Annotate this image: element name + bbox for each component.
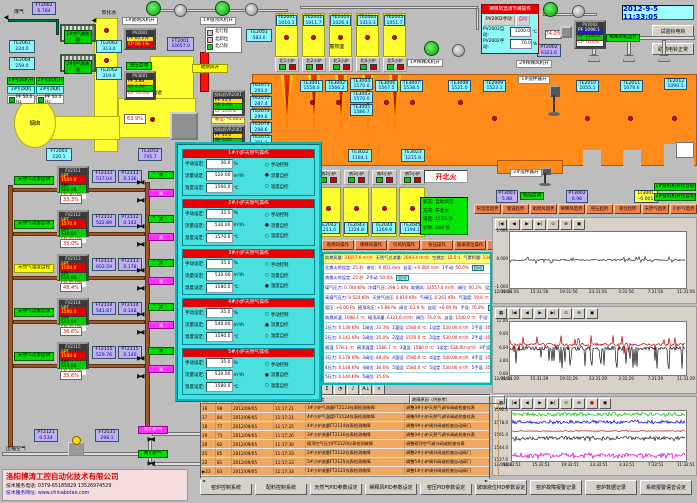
- vfun-shape: [658, 55, 670, 62]
- fan-icon: [174, 4, 187, 17]
- radio-流量自控[interactable]: ●流量自控: [265, 372, 314, 378]
- tag-PT3002: PT30026.96: [566, 190, 588, 203]
- tag-TE3005: TE30051586.7: [350, 104, 373, 116]
- red-dot: [458, 100, 463, 105]
- id-fan2: 2#引风机: [36, 86, 64, 94]
- chart-toolbar-icon[interactable]: ▶|: [547, 398, 559, 409]
- trend-chart-1: |◀◀▶▶|⊙⊕▣1.0000.000-1.00012/09/0411:31:5…: [492, 217, 697, 304]
- controller-FV2111: FV2111SPT 1560.0SPF 520.00CP 30.0%: [57, 166, 89, 193]
- valve[interactable]: ▶◀: [137, 284, 149, 292]
- panel-title: 5#小炉天然气操作: [183, 349, 314, 357]
- radio-温度自控[interactable]: ○温度自控: [265, 184, 314, 190]
- valve[interactable]: ▶◀: [137, 196, 149, 204]
- chart-plot: [509, 231, 687, 289]
- dilution-panel-title: 稀释风温调节阀操作: [482, 5, 538, 14]
- radio-温度自控[interactable]: ○温度自控: [265, 233, 314, 239]
- comb-fan1-on: 1#助燃风机开: [122, 17, 158, 25]
- tag-FT2002: FT20020.784: [32, 2, 56, 15]
- ops-button-4[interactable]: 窑压操作: [421, 240, 453, 250]
- valve[interactable]: ▶◀: [144, 459, 156, 467]
- alarm-row[interactable]: 17842012/09/0511:17:214#小炉气温度FT2124仪表检测故…: [201, 413, 489, 422]
- tag-FT2111: FT2111517.04: [92, 170, 116, 183]
- fan-frequency: PF 50.0 Hz: [7, 95, 35, 104]
- chart-toolbar-icon[interactable]: |◀: [508, 398, 520, 409]
- tag-TE2071: TE2071293.0: [250, 83, 272, 94]
- dilution-valve-panel: 稀释风温调节阀操作 PV2002手动 自动 PV2002自动: 1100.0 ℃…: [481, 4, 539, 54]
- tag-TE3007: TE30071538.5: [400, 80, 423, 92]
- valve-pos-FV2113: 48.4%: [60, 283, 82, 292]
- alarm-row[interactable]: 20822012/09/0511:17:30碹顶空气压力PT2120仪表检测故障…: [201, 440, 489, 449]
- comb-bell-button[interactable]: 助燃电铃正常: [652, 43, 694, 55]
- controller-投料机VR2001: 投料机VR2001PF 33.0SP 0.00CP 10.0%: [211, 90, 245, 116]
- burner-north-1[interactable]: 北1小炉: [275, 57, 299, 72]
- stirrer-1: [546, 86, 562, 126]
- controller-FV2112: FV2112SPT 1570.0SPF 530.00CP 35.0%: [57, 210, 89, 237]
- tag-TE2010: TE20101055.1: [576, 80, 599, 92]
- fan-icon: [245, 3, 258, 16]
- train-mode-5: 天然气流量自动: [14, 352, 54, 361]
- alarm-row[interactable]: 18772012/09/0511:17:254#小炉流量FT2114仪表检测故障…: [201, 422, 489, 431]
- radio-手动控制[interactable]: ○手动控制: [265, 162, 314, 168]
- valve-pos-FV2115: 35.6%: [60, 371, 82, 380]
- alarm-row[interactable]: 22812012/09/0511:17:335#小炉流量FT2125仪表检测故障…: [201, 458, 489, 467]
- tag-TE2063: TE2063313.0: [96, 40, 122, 53]
- flow-setpoint[interactable]: 530.00: [206, 370, 233, 380]
- comb-air-open: 助燃风开: [192, 64, 228, 73]
- red-dot: [150, 117, 155, 122]
- vfun-shape: [623, 55, 635, 62]
- red-dot: [338, 35, 343, 40]
- burner-south-3[interactable]: 南3小炉: [344, 170, 369, 185]
- burner-north-4[interactable]: 北4小炉: [356, 57, 380, 72]
- red-dot: [354, 206, 359, 211]
- red-dot: [628, 116, 633, 121]
- chart-toolbar-icon[interactable]: ◀: [521, 308, 533, 319]
- red-dot: [382, 206, 387, 211]
- chart-toolbar-icon[interactable]: ●: [586, 398, 598, 409]
- tag-TE2011: TE20111079.6: [620, 80, 643, 92]
- alarm-row[interactable]: 21852012/09/0511:17:332#小炉流量FT2122仪表检测故障…: [201, 449, 489, 458]
- burner-gas-panel-3: 3#小炉天然气操作手动设定:35.0%流量设定:530.00m³/h温度设定:1…: [182, 249, 315, 296]
- red-dot: [326, 206, 331, 211]
- chart-toolbar-icon[interactable]: ▶: [521, 219, 533, 230]
- tag-FT2114: FT2114541.87: [92, 302, 116, 315]
- process-summary-table: 助燃风量:33557.6 m³/h天然气总流量:2693.4 m³/h空燃比:1…: [322, 252, 492, 385]
- reversal-status: 状态: 自动状态方向: 开北火设定: 1175 秒计时: 269 秒: [420, 197, 468, 235]
- alarm-table: 故障点故障原因（供参考）16982012/09/0511:17:213#小炉气流…: [200, 394, 490, 478]
- pv2002-manual-button[interactable]: PV2002手动: [483, 15, 515, 26]
- gas-close-south-2: 南2天然气关: [148, 233, 174, 241]
- nav-button-8[interactable]: 窑炉数据记录: [585, 480, 637, 495]
- fan-icon: [215, 1, 230, 16]
- pipeB-shape: [8, 185, 13, 447]
- red-dot: [365, 35, 370, 40]
- ops-button-1[interactable]: 助燃风操作: [322, 240, 354, 250]
- radio-温度自控[interactable]: ●温度自控: [265, 283, 314, 289]
- gas-close-south-5: 南5天然气关: [148, 365, 174, 373]
- gas-close-south-4: 南4天然气关: [148, 321, 174, 329]
- tag-TE3023: TE30231215.8: [401, 149, 425, 162]
- mode-chip[interactable]: 自动: [396, 275, 408, 281]
- chart-toolbar-icon[interactable]: ⊙: [560, 398, 572, 409]
- burner-gas-panel-4: 4#小炉天然气操作手动设定:35.0%流量设定:540.00m³/h温度设定:1…: [182, 298, 315, 345]
- valve[interactable]: ▶◀: [144, 435, 156, 443]
- alarm-scrollbar[interactable]: ◄►: [201, 476, 489, 484]
- trend-button-4[interactable]: 稀释风趋势: [558, 204, 585, 214]
- scada-screen: 2012-9-5 11:33:05 稀释风温调节阀操作 PV2002手动 自动 …: [0, 0, 697, 503]
- tag-TE2009: TE20091523.1: [483, 80, 506, 92]
- chart-toolbar-icon[interactable]: ⊙: [547, 219, 559, 230]
- controller-PV3001: PV3001PF 5.88SP 6.00CP 70.0%: [124, 71, 156, 100]
- manual-setpoint[interactable]: 35.0: [206, 358, 233, 368]
- tag-TE2052: TE2052745.7: [138, 148, 162, 161]
- pv2002-auto-button[interactable]: 自动: [516, 15, 531, 26]
- radio-流量自控[interactable]: ●流量自控: [265, 173, 314, 179]
- pv2002-auto-input[interactable]: 1100.0: [510, 27, 531, 37]
- chart-toolbar-icon[interactable]: ▶|: [534, 219, 546, 230]
- id-fan2-on: 2#引风机开: [36, 77, 64, 85]
- radio-手动控制[interactable]: ○手动控制: [265, 362, 314, 368]
- manual-setpoint[interactable]: 35.0: [206, 259, 233, 269]
- valve[interactable]: ▶◀: [137, 240, 149, 248]
- mode-chip[interactable]: 自动: [488, 305, 490, 311]
- tag-TE2004: TE20041013.3: [357, 15, 378, 26]
- gas-open-north-1: 北1天然气开: [148, 171, 174, 179]
- label-soft-water: 软化水: [98, 10, 120, 17]
- id-fan1: 1#引风机: [7, 86, 35, 94]
- flow-arrow-left: ◀: [2, 14, 10, 22]
- panel-title: 1#小炉天然气操作: [183, 150, 314, 158]
- controller-FV2114: FV2114SPT 1590.0SPF 540.00CP 35.0%: [57, 298, 89, 325]
- train-mode-2: 天然气流量自动: [14, 220, 54, 229]
- flow-setpoint[interactable]: 530.00: [206, 271, 233, 281]
- trend-button-2[interactable]: 烟道趋势: [502, 204, 529, 214]
- stirrer1-on: 1#搅拌器开: [518, 76, 550, 84]
- label-regenerator-north: 蓄热室: [327, 44, 347, 50]
- red-dot: [492, 116, 497, 121]
- tag-FT2001: FT200133657.0: [167, 37, 194, 51]
- flow-setpoint[interactable]: 530.00: [206, 221, 233, 231]
- valve-pos-FV2114: 36.6%: [60, 327, 82, 336]
- valve[interactable]: ▶◀: [137, 354, 149, 362]
- feeder2-level-auto: 2#投料机液位自动: [654, 193, 696, 201]
- burner-north-3[interactable]: 北3小炉: [329, 57, 353, 72]
- gas-open-north-5: 北5天然气开: [148, 347, 174, 355]
- gas-open-north-3: 北3天然气开: [148, 259, 174, 267]
- pipeT-shape: [56, 19, 59, 35]
- tag-FT2112: FT2112522.89: [92, 214, 116, 227]
- label-compressed-air: 压缩空气: [3, 446, 29, 453]
- tag-TE3022: TE30221194.1: [348, 149, 372, 162]
- red-dot: [336, 100, 341, 105]
- tag-PT3001: PT30015.88: [496, 190, 518, 203]
- pipe-shape: [627, 40, 631, 55]
- burner-south-4[interactable]: 南4小炉: [372, 170, 397, 185]
- pipe-shape: [662, 40, 666, 55]
- controller-FV2115: FV2115SPT 1580.0SPF 530.00CP 35.0%: [57, 342, 89, 369]
- radio-流量自控[interactable]: ○流量自控: [265, 273, 314, 279]
- tag-FT2113: FT2113603.59: [92, 258, 116, 271]
- temp-setpoint[interactable]: 1560.0: [206, 183, 233, 193]
- ops-button-5[interactable]: 玻璃液位操作: [454, 240, 486, 250]
- dilution-fan-running: 稀释风机运行: [606, 34, 640, 42]
- heat-exchanger: 1#空气换热器: [60, 24, 96, 42]
- flue-fan-machine: [170, 112, 198, 140]
- fan-frequency: PF 50.0 Hz: [36, 95, 64, 104]
- valve[interactable]: ▶◀: [137, 266, 149, 274]
- flow-setpoint[interactable]: 520.00: [206, 171, 233, 181]
- panel-title: 3#小炉天然气操作: [183, 250, 314, 258]
- chart-toolbar-icon[interactable]: ⊕: [560, 219, 572, 230]
- burner-north-5[interactable]: 北5小炉: [383, 57, 407, 72]
- kiln-pressure-auto: 窑压自动: [520, 192, 544, 200]
- tag-TE2043: TE20431224.8: [344, 222, 368, 234]
- temp-setpoint[interactable]: 1570.0: [206, 233, 233, 243]
- tag-TE2044: TE20441269.8: [372, 222, 396, 234]
- chart-toolbar-icon[interactable]: ⊕: [573, 398, 585, 409]
- bg-shape: [623, 150, 641, 166]
- red-dot: [310, 100, 315, 105]
- crown-fan1-on: 1#碹顶风机开: [200, 17, 236, 25]
- tag-TE2073: TE2073299.6: [250, 109, 272, 120]
- air-mixer: [560, 26, 572, 38]
- tag-TE3002: TE30021566.2: [325, 80, 348, 92]
- manual-setpoint[interactable]: 30.0: [206, 159, 233, 169]
- controller-FV2113: FV2113SPT 1580.0SPF 530.00CP 35.0%: [57, 254, 89, 281]
- radio-手动控制[interactable]: ○手动控制: [265, 312, 314, 318]
- alarm-row[interactable]: 16982012/09/0511:17:213#小炉气流量FT2123仪表检测故…: [201, 404, 489, 413]
- vfun-shape: [588, 55, 600, 62]
- panel-title: 4#小炉天然气操作: [183, 299, 314, 307]
- red-dot: [384, 100, 389, 105]
- valve-pos-FV2111: 33.3%: [60, 195, 82, 204]
- trend-button-5[interactable]: 窑压趋势: [586, 204, 613, 214]
- gas-open-north-2: 北2天然气开: [148, 215, 174, 223]
- radio-流量自控[interactable]: ●流量自控: [265, 322, 314, 328]
- tag-TE2003: TE20031026.4: [330, 15, 351, 26]
- tag-TE2005: TE20051051.7: [384, 15, 405, 26]
- red-dot: [104, 28, 109, 33]
- burner-gas-panel-2: 2#小炉天然气操作手动设定:35.0%流量设定:530.00m³/h温度设定:1…: [182, 199, 315, 246]
- mode-chip[interactable]: 自动: [472, 265, 484, 271]
- temp-setpoint[interactable]: 1590.0: [206, 332, 233, 342]
- radio-流量自控[interactable]: ●流量自控: [265, 223, 314, 229]
- trend-button-8[interactable]: 小炉气趋势: [670, 204, 697, 214]
- radio-手动控制[interactable]: ○手动控制: [265, 212, 314, 218]
- tag-TE2064: TE2064259.0: [9, 57, 35, 70]
- chart-toolbar-icon[interactable]: ▣: [573, 219, 585, 230]
- feeder1-level-auto: 1#投料机液位自动: [654, 183, 696, 191]
- valve[interactable]: ▶◀: [137, 372, 149, 380]
- bg-shape: [583, 150, 601, 166]
- trend-chart-2: ▦|◀◀▶▶|⊙⊕▣12.009.006.003.000.0012/09/041…: [492, 306, 697, 394]
- label-coal-gas: 煤气: [10, 9, 28, 16]
- trend-chart-3: ▦|◀◀▶▶|⊙⊕●▣1592.01578.01561.01544.01527.…: [492, 396, 697, 476]
- chart-toolbar-icon[interactable]: ▶|: [547, 308, 559, 319]
- south-port-gas: 南小炉气: [138, 450, 168, 458]
- chart-toolbar-icon[interactable]: ◀: [521, 398, 533, 409]
- tag-TE3008: TE30081521.0: [448, 80, 471, 92]
- tag-TE2074: TE2074298.6: [250, 122, 272, 133]
- flow-setpoint[interactable]: 540.00: [206, 320, 233, 330]
- red-dot: [392, 35, 397, 40]
- reversal-legend: 北行程北卸位北凸轮: [205, 27, 242, 53]
- tag-TE3004: TE30041570.0: [350, 78, 373, 90]
- radio-温度自控[interactable]: ○温度自控: [265, 383, 314, 389]
- company-phone: 技术服务电话: 0379-65185829 13526974529: [6, 483, 184, 490]
- company-website: 技术服务网址: www.chinabotao.com: [6, 490, 184, 497]
- chart-plot: [511, 410, 687, 462]
- tag-FT2003: FT2003220.1: [46, 148, 72, 161]
- valve[interactable]: ▶◀: [137, 222, 149, 230]
- north-port-gas: 北小炉气: [138, 426, 168, 434]
- tag-TE2062: TE2062319.0: [96, 67, 122, 80]
- trend-button-6[interactable]: 液位趋势: [614, 204, 641, 214]
- red-dot: [104, 58, 109, 63]
- tag-TE2051: TE2051583.0: [246, 29, 272, 42]
- burner-south-5[interactable]: 南5小炉: [400, 170, 425, 185]
- red-dot: [410, 100, 415, 105]
- chart-toolbar-icon[interactable]: |◀: [508, 308, 520, 319]
- nav-button-9[interactable]: 系统报警语音设定: [640, 480, 692, 495]
- chart-toolbar-icon[interactable]: ◀: [508, 219, 520, 230]
- red-dot: [311, 35, 316, 40]
- flow-meter: [68, 442, 84, 456]
- valve-pos-FV2112: 35.0%: [60, 239, 82, 248]
- gas-close-south-1: 南1天然气关: [148, 189, 174, 197]
- manual-setpoint[interactable]: 35.0: [206, 209, 233, 219]
- chart-toolbar-icon[interactable]: ⊙: [560, 308, 572, 319]
- chart-toolbar-icon[interactable]: ▣: [599, 398, 611, 409]
- radio-手动控制[interactable]: ○手动控制: [265, 262, 314, 268]
- unit: %: [533, 42, 537, 47]
- pipe-shape: [476, 8, 479, 30]
- stirrer2-on: 2#搅拌器开: [510, 169, 542, 177]
- trend-button-7[interactable]: 天然气趋势: [642, 204, 669, 214]
- alarm-row[interactable]: 19752012/09/0511:17:263#小炉流量FT2116仪表检测故障…: [201, 431, 489, 440]
- trend-button-1[interactable]: 窑温度趋势: [474, 204, 501, 214]
- panel-title: 2#小炉天然气操作: [183, 200, 314, 208]
- tag-TE3003: TE30031570.0: [350, 91, 373, 103]
- chimney: 烟囱: [14, 98, 56, 148]
- fan-icon: [543, 2, 558, 17]
- dilution-fan1-on: 1#稀释风机开: [407, 59, 443, 67]
- tag-TE3006: TE30061567.5: [375, 80, 398, 92]
- pipeT-shape: [8, 19, 58, 22]
- pv2002-auto-label: PV2002自动:: [483, 26, 509, 38]
- kiln-pressure-auto: 窑压自动: [126, 62, 152, 70]
- dilution-fan2-on: 2#稀释风机开: [516, 60, 552, 68]
- radio-温度自控[interactable]: ○温度自控: [265, 333, 314, 339]
- train-mode-3: 天然气温度自控: [14, 264, 54, 273]
- fan-icon: [424, 41, 439, 56]
- fan-icon: [452, 44, 465, 57]
- red-dot: [284, 35, 289, 40]
- fire-direction: 开北火: [424, 170, 468, 183]
- gas-open-north-4: 北4天然气开: [148, 303, 174, 311]
- temp-setpoint[interactable]: 1580.0: [206, 283, 233, 293]
- tag-TE2002: TE20021011.7: [303, 15, 324, 26]
- burner-gas-panel-5: 5#小炉天然气操作手动设定:35.0%流量设定:530.00m³/h温度设定:1…: [182, 348, 315, 395]
- company-name: 洛阳博涛工控自动化技术有限公司: [6, 472, 184, 483]
- heat-exchanger: 2#空气换热器: [60, 54, 96, 72]
- tag-TE2001: TE20011010.1: [276, 15, 297, 26]
- whitebox-shape: [676, 142, 694, 158]
- alarm-row[interactable]: ▶23832012/09/0511:17:331#小炉流量FT2121仪表检测故…: [201, 467, 489, 476]
- tag-TE3001: TE30011558.0: [300, 80, 323, 92]
- nav-button-7[interactable]: 窑炉故障报警记录: [530, 480, 582, 495]
- manual-setpoint[interactable]: 35.0: [206, 308, 233, 318]
- temp-setpoint[interactable]: 1580.0: [206, 382, 233, 392]
- tag-PT2002: PT20026321.6: [537, 44, 561, 57]
- chart-toolbar-icon[interactable]: ▶: [534, 398, 546, 409]
- valve[interactable]: ▶◀: [137, 310, 149, 318]
- burner-gas-panel-1: 1#小炉天然气操作手动设定:30.0%流量设定:520.00m³/h温度设定:1…: [182, 149, 315, 196]
- gas-close-south-3: 南3天然气关: [148, 277, 174, 285]
- tag-TE2072: TE2072287.4: [250, 96, 272, 107]
- chart-toolbar-icon[interactable]: ⊕: [573, 308, 585, 319]
- tag-FT2115: FT2115529.76: [92, 346, 116, 359]
- burner-gas-popup: 1#小炉天然气操作手动设定:30.0%流量设定:520.00m³/h温度设定:1…: [175, 142, 322, 402]
- chart-toolbar-icon[interactable]: ▶: [534, 308, 546, 319]
- tag-TE2012: TE20121090.1: [664, 78, 687, 90]
- valve[interactable]: ▶◀: [137, 328, 149, 336]
- flue-damper-position: 63.9%: [124, 114, 146, 124]
- valve[interactable]: ▶◀: [137, 178, 149, 186]
- ops-button-2[interactable]: 稀释风操作: [355, 240, 387, 250]
- trend-button-3[interactable]: 助燃风趋势: [530, 204, 557, 214]
- feeder-level: 液位: -0.001: [211, 117, 245, 124]
- fan-icon: [572, 5, 585, 18]
- company-info: 洛阳博涛工控自动化技术有限公司 技术服务电话: 0379-65185829 13…: [2, 469, 188, 501]
- pv2002-man-label: PV2002手动:: [483, 38, 509, 50]
- tag-PT2121: PT21210.534: [34, 429, 58, 442]
- pipe-shape: [300, 6, 478, 9]
- ops-button-3[interactable]: 引风机操作: [388, 240, 420, 250]
- controller-PV2001: PV2001PF 60.2%CP 60.1%: [124, 28, 156, 50]
- train-mode-4: 天然气流量自动: [14, 308, 54, 317]
- pv2002-man-input[interactable]: 70.0: [510, 39, 531, 49]
- controller-PV2002: PV2002PF 1098.1SP 1100.0CP 70.0%: [574, 20, 606, 49]
- chart-toolbar-icon[interactable]: ▣: [586, 308, 598, 319]
- id-fan1-on: 1#引风机开: [7, 77, 35, 85]
- tag-TE2061: TE2061224.0: [9, 40, 35, 53]
- tag-FT2131: FT2131298.1: [95, 429, 119, 442]
- chart-plot: [509, 321, 687, 376]
- train-mode-1: 天然气流量自动: [14, 176, 54, 185]
- red-dot: [585, 116, 590, 121]
- fan-icon: [146, 1, 161, 16]
- datetime-display: 2012-9-5 11:33:05: [622, 5, 694, 20]
- unit: ℃: [532, 30, 537, 35]
- burner-north-2[interactable]: 北2小炉: [302, 57, 326, 72]
- red-dot: [410, 206, 415, 211]
- red-dot: [672, 116, 677, 121]
